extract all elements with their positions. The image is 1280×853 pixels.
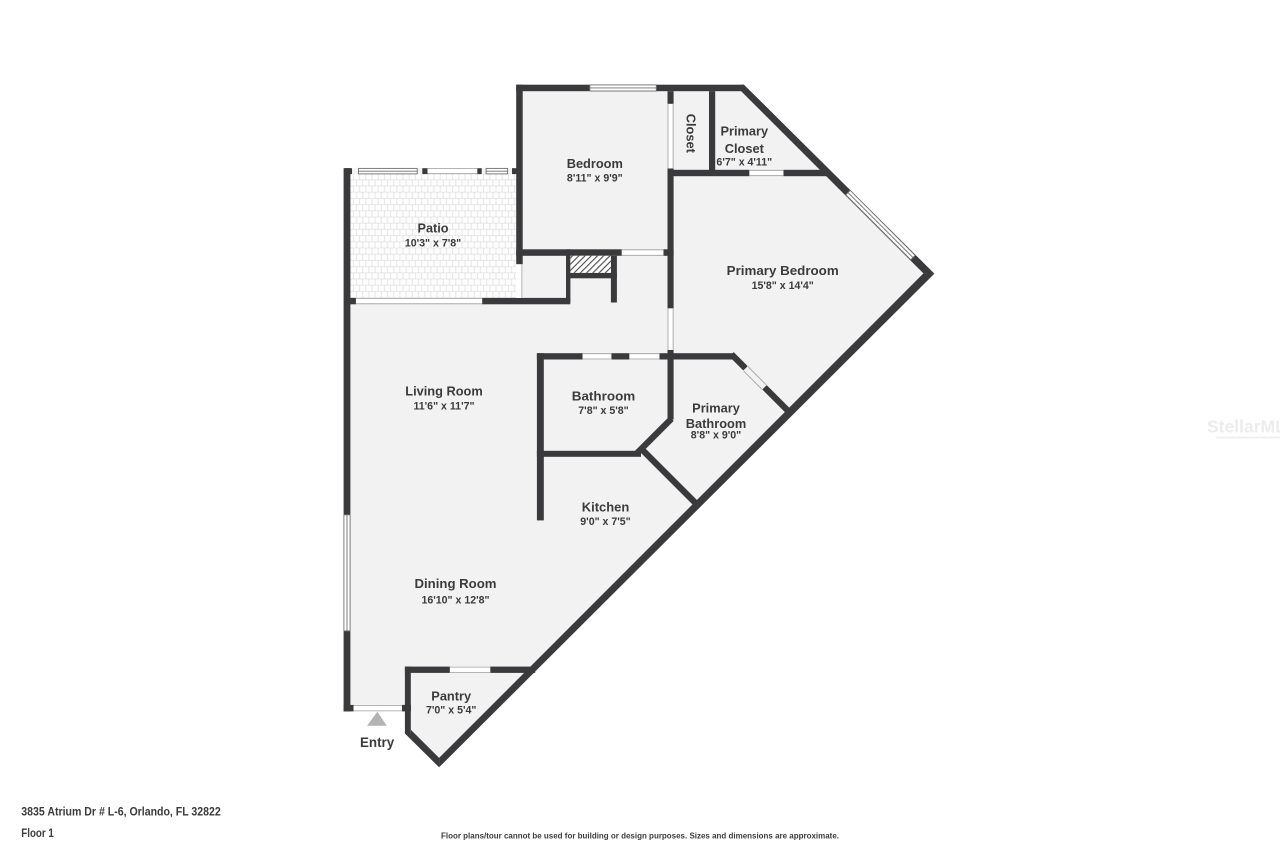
svg-text:Bathroom: Bathroom [572,389,636,404]
svg-text:Pantry: Pantry [431,689,472,704]
svg-text:StellarMLS: StellarMLS [1207,417,1280,437]
svg-text:8'8" x 9'0": 8'8" x 9'0" [691,429,741,441]
svg-text:3835 Atrium Dr # L-6, Orlando,: 3835 Atrium Dr # L-6, Orlando, FL 32822 [21,805,221,819]
svg-text:6'7" x 4'11": 6'7" x 4'11" [716,156,772,168]
svg-text:Floor 1: Floor 1 [21,826,54,840]
svg-text:Patio: Patio [418,221,449,236]
svg-text:8'11" x 9'9": 8'11" x 9'9" [567,173,623,185]
svg-text:Primary: Primary [692,401,741,416]
svg-text:Primary Bedroom: Primary Bedroom [727,263,839,278]
svg-text:9'0" x 7'5": 9'0" x 7'5" [580,516,630,528]
svg-text:Living Room: Living Room [405,384,483,399]
svg-text:Closet: Closet [684,114,699,154]
svg-text:Primary: Primary [720,124,769,139]
svg-text:15'8" x 14'4": 15'8" x 14'4" [752,280,814,292]
svg-text:Dining Room: Dining Room [415,576,497,591]
svg-text:7'0" x 5'4": 7'0" x 5'4" [426,704,476,716]
svg-text:11'6" x 11'7": 11'6" x 11'7" [413,401,474,413]
svg-text:Entry: Entry [360,735,395,750]
svg-text:16'10" x 12'8": 16'10" x 12'8" [421,595,489,607]
svg-text:7'8" x 5'8": 7'8" x 5'8" [578,405,628,417]
svg-text:10'3" x 7'8": 10'3" x 7'8" [405,238,461,250]
svg-text:Floor plans/tour cannot be use: Floor plans/tour cannot be used for buil… [441,831,839,841]
svg-text:Closet: Closet [725,141,765,156]
svg-text:Bedroom: Bedroom [567,156,623,171]
svg-text:Kitchen: Kitchen [582,500,630,515]
